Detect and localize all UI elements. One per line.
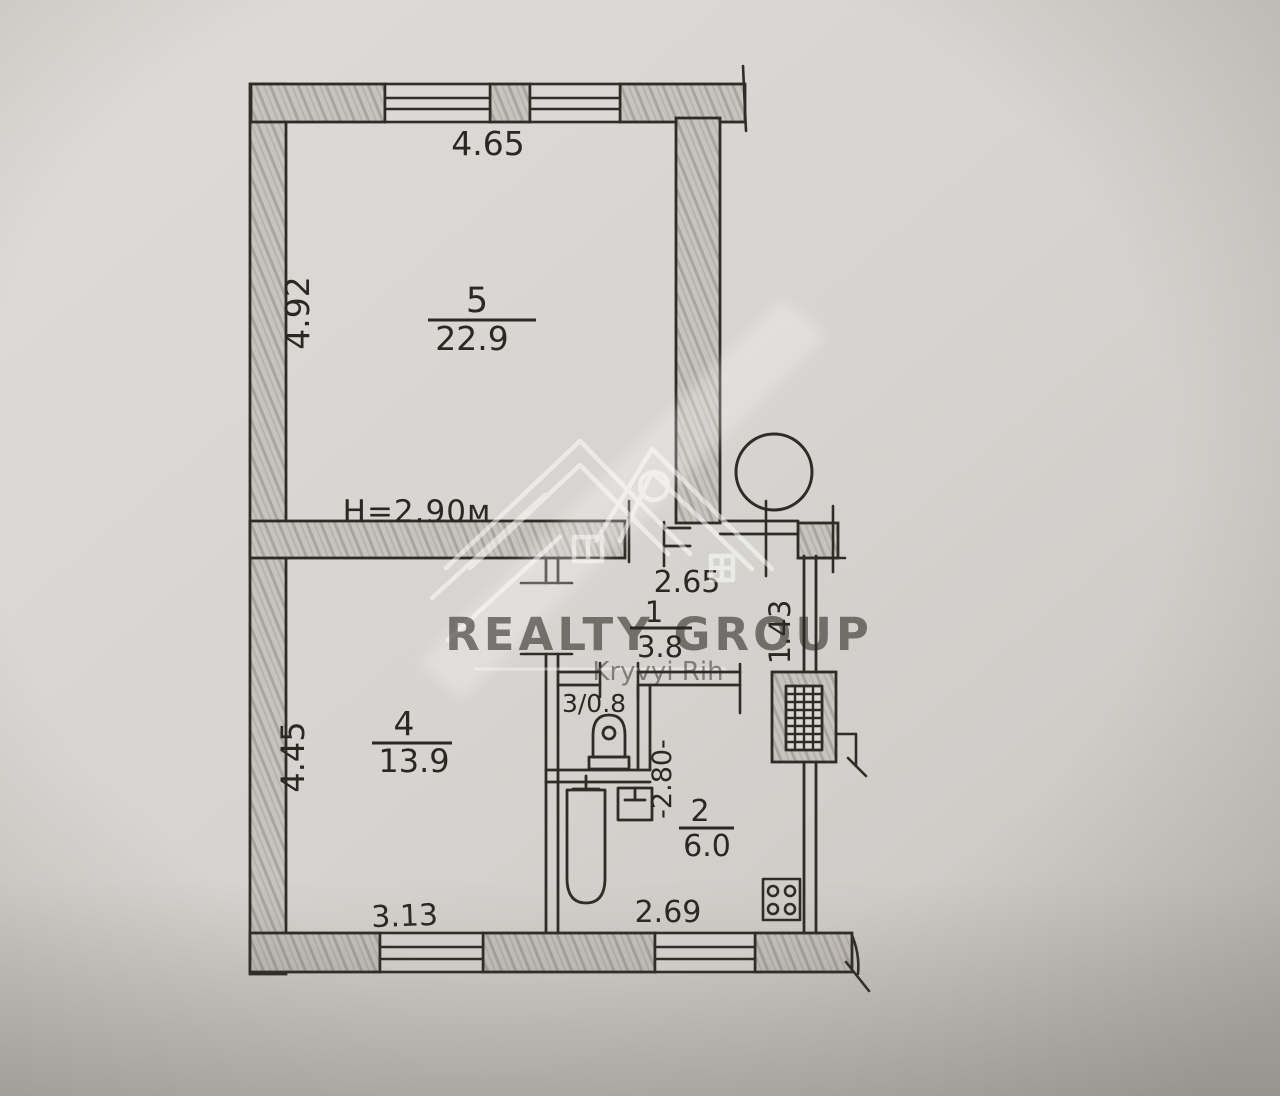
photo-vignette [0,0,1280,1096]
floor-plan-drawing: 5 22.9 4 13.9 1 3.8 2 6.0 3/0.8 H=2.90м … [0,0,1280,1096]
floor-plan-photo: 5 22.9 4 13.9 1 3.8 2 6.0 3/0.8 H=2.90м … [0,0,1280,1096]
